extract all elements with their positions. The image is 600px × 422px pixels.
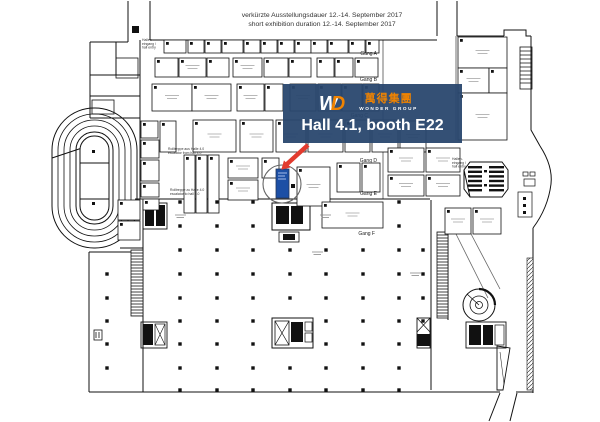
booth <box>264 58 288 77</box>
booth <box>355 58 378 77</box>
ramp-triangle <box>497 346 510 390</box>
booth <box>141 183 159 197</box>
booth <box>240 120 273 152</box>
elevator-core-top <box>272 203 310 242</box>
hall-location-text: Hall 4.1, booth E22 <box>301 118 443 134</box>
booth <box>196 155 207 213</box>
elevator-core-center <box>272 318 313 348</box>
column-dot <box>361 319 364 322</box>
booth <box>179 58 206 77</box>
floor-mark <box>312 252 323 255</box>
column-dot <box>397 296 400 299</box>
booth <box>233 58 262 77</box>
header: verkürzte Ausstellungsdauer 12.-14. Sept… <box>242 12 403 28</box>
column-dot <box>105 342 108 345</box>
column-dot <box>397 319 400 322</box>
corridor-marker <box>132 26 139 33</box>
aisle-label: Gang B <box>360 77 378 83</box>
column-dot <box>421 296 424 299</box>
column-dot <box>361 272 364 275</box>
booth <box>118 221 140 240</box>
curved-facade <box>533 146 551 228</box>
booth <box>473 208 501 234</box>
booth <box>445 208 471 234</box>
booth <box>152 84 192 111</box>
column-dot <box>251 224 254 227</box>
floor-plan-page: verkürzte Ausstellungsdauer 12.-14. Sept… <box>0 0 600 422</box>
column-dot <box>324 248 327 251</box>
escalator-hatch-right <box>437 232 448 318</box>
column-dot <box>251 272 254 275</box>
column-dot <box>324 296 327 299</box>
booth <box>141 140 159 158</box>
column-dot <box>397 248 400 251</box>
column-dot <box>361 366 364 369</box>
booth <box>237 84 264 111</box>
column-dot <box>105 319 108 322</box>
column-dot <box>324 319 327 322</box>
column-dot <box>288 388 291 391</box>
column-dot <box>251 319 254 322</box>
booth <box>155 58 178 77</box>
monogram-d: D <box>331 94 345 114</box>
booth <box>141 121 158 138</box>
facade-hatch-band <box>527 258 533 390</box>
column-dot <box>397 366 400 369</box>
plan-note: Hallen-eingang /hall entry <box>452 157 466 169</box>
floor-plan-drawing: verkürzte Ausstellungsdauer 12.-14. Sept… <box>0 0 600 422</box>
column-dot <box>288 248 291 251</box>
booth <box>322 202 383 228</box>
column-dot <box>324 272 327 275</box>
column-dot <box>288 296 291 299</box>
column-dot <box>215 366 218 369</box>
booth <box>362 163 380 192</box>
column-dot <box>397 272 400 275</box>
column-dot <box>361 388 364 391</box>
column-dot <box>397 200 400 203</box>
column-dot <box>251 342 254 345</box>
booth <box>228 180 258 200</box>
column-dot <box>178 224 181 227</box>
booth <box>317 58 334 77</box>
booth <box>337 163 360 192</box>
column-dot <box>361 296 364 299</box>
column-dot <box>324 366 327 369</box>
column-dot <box>178 200 181 203</box>
column-dot <box>178 342 181 345</box>
column-dot <box>215 272 218 275</box>
column-dot <box>178 296 181 299</box>
column-dot <box>178 248 181 251</box>
booth <box>388 148 424 172</box>
logo-chinese-name: 萬得集團 <box>365 94 413 105</box>
entrance-ramp-lines <box>489 393 517 421</box>
escalator-hatch-left <box>131 250 143 316</box>
booth <box>143 199 159 210</box>
column-dot <box>397 388 400 391</box>
column-dot <box>324 388 327 391</box>
column-dot <box>215 248 218 251</box>
aisle-label: Gang D <box>360 158 378 164</box>
booth <box>118 200 140 220</box>
plan-note: Rolltreppe zu Halle 4.0escalator to hall… <box>170 188 204 196</box>
wd-monogram: WD <box>319 94 345 114</box>
floor-mark <box>175 215 186 218</box>
wonder-group-logo: WD 萬得集團 WONDER GROUP <box>319 94 426 114</box>
column-dot <box>215 296 218 299</box>
column-dot <box>105 296 108 299</box>
spiral-staircase <box>463 289 495 321</box>
booth <box>458 68 489 93</box>
wonder-group-banner: WD 萬得集團 WONDER GROUP Hall 4.1, booth E22 <box>283 84 462 143</box>
column-dot <box>288 272 291 275</box>
booth <box>141 160 159 181</box>
column-dot <box>324 342 327 345</box>
booth <box>261 40 277 53</box>
aisle-label: Gang A <box>360 51 377 57</box>
column-dot <box>251 248 254 251</box>
elevator-core-bottom-right <box>466 322 506 348</box>
column-dot <box>178 272 181 275</box>
column-dot <box>291 184 295 188</box>
column-dot <box>215 342 218 345</box>
column-dot <box>361 248 364 251</box>
column-dot <box>361 342 364 345</box>
stairs-ladder <box>520 47 532 89</box>
booth <box>311 40 327 53</box>
booth <box>388 175 424 196</box>
column-dot <box>178 319 181 322</box>
column-dot <box>421 248 424 251</box>
diagonal-walkway <box>455 232 500 298</box>
column-dot <box>215 319 218 322</box>
plan-note: Rolltreppe aus Halle 4.0escalator from h… <box>168 147 204 155</box>
booth <box>207 58 229 77</box>
booth <box>335 58 353 77</box>
booth <box>297 167 330 206</box>
booth <box>228 158 258 178</box>
column-dot <box>397 224 400 227</box>
column-dot <box>215 224 218 227</box>
column-dot <box>251 366 254 369</box>
column-dot <box>397 342 400 345</box>
booth <box>222 40 243 53</box>
booth <box>188 40 204 53</box>
booth <box>244 40 260 53</box>
booth <box>205 40 221 53</box>
booth <box>458 37 507 68</box>
column-dot <box>105 272 108 275</box>
booth <box>289 58 311 77</box>
logo-group-name: WONDER GROUP <box>359 107 418 112</box>
column-dot <box>178 388 181 391</box>
column-dot <box>251 200 254 203</box>
booth <box>489 68 507 93</box>
column-dot <box>251 296 254 299</box>
header-line2: short exhibition duration 12.-14. Septem… <box>248 21 396 28</box>
booth <box>192 84 231 111</box>
header-line1: verkürzte Ausstellungsdauer 12.-14. Sept… <box>242 12 403 19</box>
floor-mark <box>410 273 421 276</box>
elevator-core-left-bottom <box>141 322 167 348</box>
column-dot <box>421 272 424 275</box>
booth <box>265 84 283 111</box>
column-dot <box>105 366 108 369</box>
column-dot <box>178 366 181 369</box>
column-dot <box>251 388 254 391</box>
booth <box>426 175 460 196</box>
booth <box>208 155 219 213</box>
column-dot <box>421 319 424 322</box>
column-dot <box>215 200 218 203</box>
aisle-label: Gang F <box>358 231 375 237</box>
aisle-label: Gang E <box>360 191 378 197</box>
booth <box>295 40 311 53</box>
booth <box>328 40 348 53</box>
column-dot <box>288 366 291 369</box>
booth <box>164 40 186 53</box>
booth <box>278 40 294 53</box>
column-dot <box>215 388 218 391</box>
booth <box>184 155 195 213</box>
stairs-octagon <box>464 162 508 197</box>
booth <box>458 93 507 140</box>
